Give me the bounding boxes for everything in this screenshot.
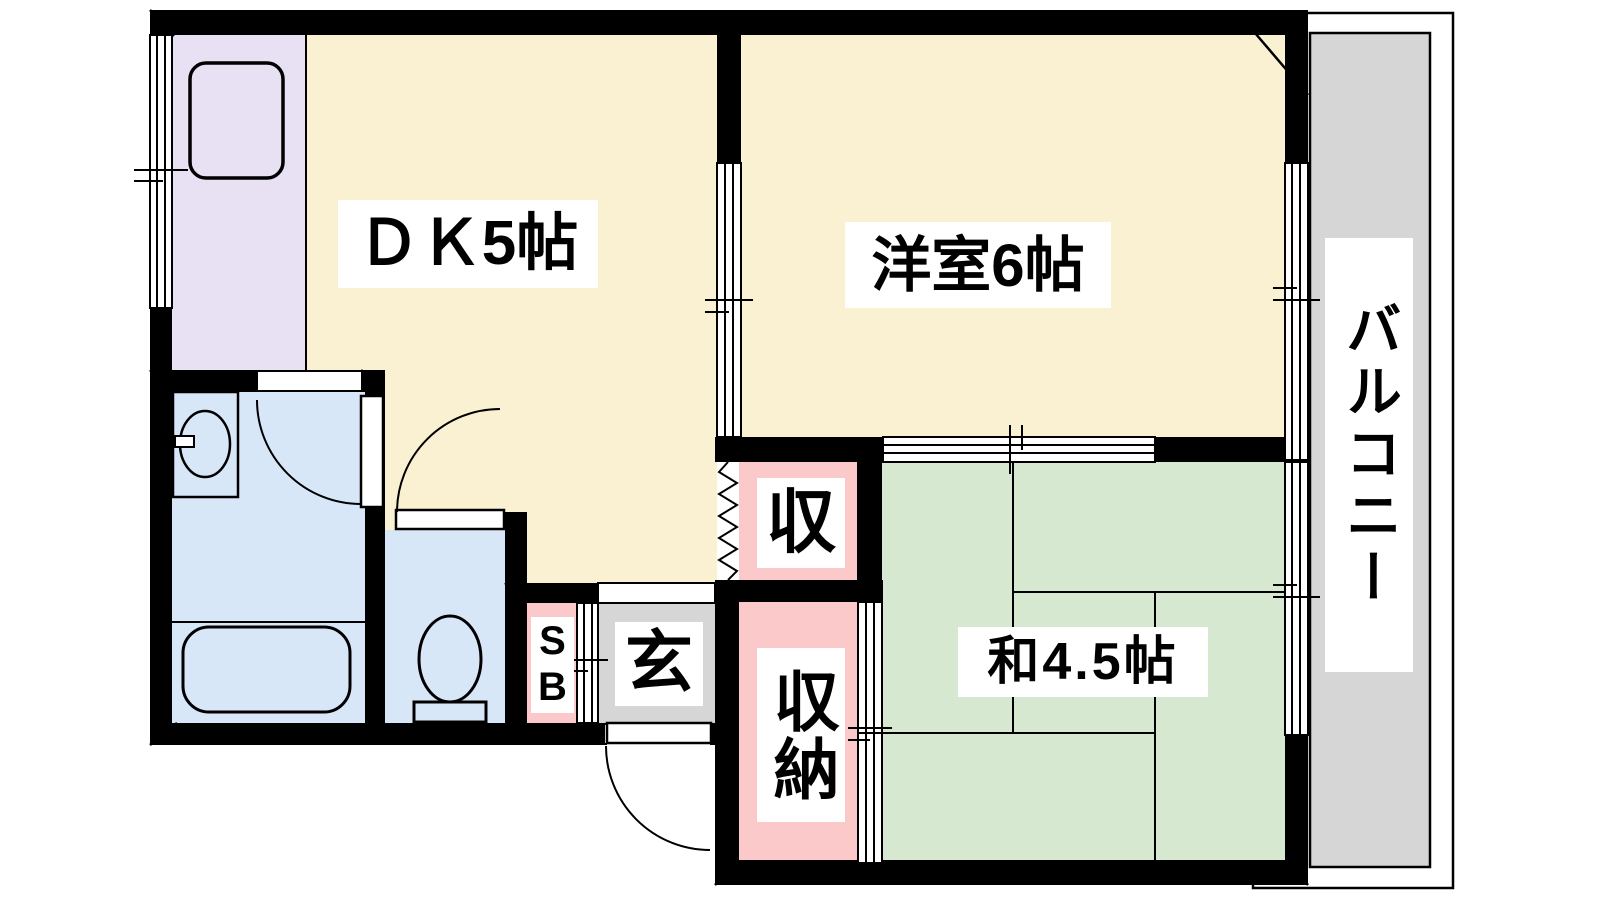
entrance-door-arc — [606, 746, 710, 850]
bathroom-area — [172, 392, 365, 723]
wall-shoebox-top — [505, 583, 600, 603]
toilet-door-leaf — [396, 510, 504, 529]
genkan-label: 玄 — [615, 622, 703, 706]
japanese-room-label: 和4.5帖 — [958, 627, 1208, 697]
wall-toilet-right — [505, 512, 527, 723]
western-balcony-window — [1285, 163, 1308, 460]
wall-closet-right-column — [857, 437, 882, 602]
dk-room-label: ＤＫ5帖 — [338, 200, 598, 288]
kitchen-window — [150, 35, 172, 308]
bathroom-door-leaf — [361, 396, 383, 507]
western-japanese-sliding-door — [883, 437, 1155, 462]
toilet-area — [385, 530, 505, 723]
western-room-label: 洋室6帖 — [845, 222, 1111, 308]
floorplan: ＤＫ5帖 洋室6帖 和4.5帖 バルコニー 玄 収 収納 SB — [0, 0, 1600, 900]
balcony-label: バルコニー — [1325, 238, 1413, 672]
genkan-step — [598, 583, 715, 603]
shoebox-sliding-door — [577, 603, 598, 723]
faucet-icon — [175, 436, 194, 447]
closet-upper-label: 収 — [757, 478, 845, 568]
wall-bottom-east — [715, 860, 1308, 885]
shoebox-label: SB — [531, 617, 574, 713]
wall-bottom-left-a — [150, 723, 607, 745]
entrance-door-leaf — [607, 723, 711, 743]
bathroom-door-gap — [258, 372, 361, 390]
japanese-balcony-window — [1285, 462, 1308, 735]
closet-lower-label: 収納 — [757, 648, 845, 822]
wall-closet-left-column — [715, 580, 739, 865]
